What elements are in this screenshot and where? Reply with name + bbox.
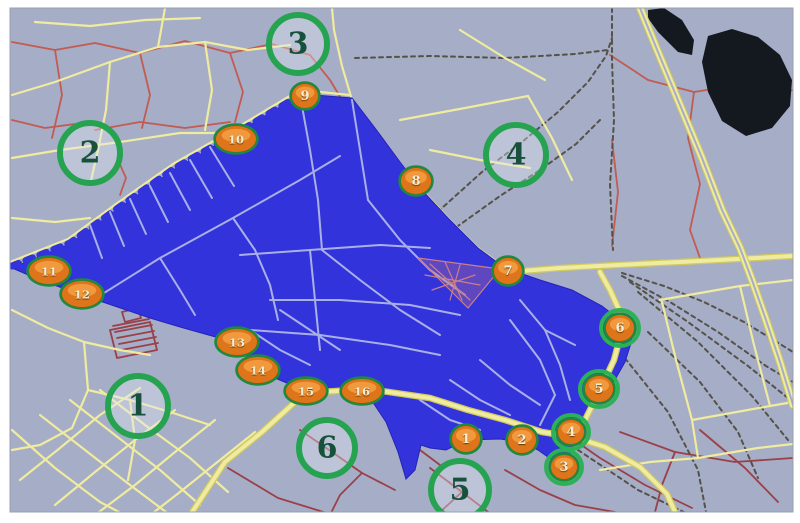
zone-number: 4 — [506, 138, 527, 173]
marker-7[interactable]: 7 — [493, 257, 524, 286]
marker-number: 6 — [615, 321, 624, 336]
marker-8[interactable]: 8 — [400, 167, 433, 196]
zone-number: 6 — [317, 431, 338, 466]
marker-number: 13 — [229, 336, 245, 350]
zone-number: 1 — [128, 389, 149, 424]
marker-number: 5 — [594, 382, 603, 397]
marker-number: 11 — [41, 265, 57, 279]
zone-circle-2: 2 — [60, 123, 120, 183]
frame-top — [0, 0, 800, 8]
marker-number: 8 — [411, 174, 420, 189]
marker-2[interactable]: 2 — [507, 426, 538, 455]
marker-number: 16 — [354, 385, 370, 399]
marker-16[interactable]: 16 — [341, 378, 384, 405]
marker-number: 9 — [300, 89, 309, 104]
zone-circle-3: 3 — [269, 15, 327, 73]
marker-number: 2 — [517, 433, 526, 448]
marker-number: 4 — [566, 425, 575, 440]
marker-number: 3 — [559, 460, 568, 475]
marker-5[interactable]: 5 — [580, 371, 618, 407]
map-screenshot: 12345612345678910111213141516 — [0, 0, 800, 523]
zone-number: 3 — [288, 27, 309, 62]
marker-12[interactable]: 12 — [61, 280, 104, 309]
marker-number: 10 — [228, 133, 244, 147]
zone-circle-1: 1 — [108, 376, 168, 436]
marker-number: 14 — [250, 364, 266, 378]
zone-circle-6: 6 — [299, 420, 355, 476]
frame-bottom — [0, 512, 800, 523]
frame-left — [0, 0, 10, 523]
zone-number: 2 — [80, 136, 101, 171]
marker-13[interactable]: 13 — [216, 328, 259, 357]
zone-circle-4: 4 — [486, 125, 546, 185]
marker-6[interactable]: 6 — [601, 310, 639, 346]
marker-number: 12 — [74, 288, 90, 302]
marker-14[interactable]: 14 — [237, 356, 280, 385]
marker-4[interactable]: 4 — [553, 415, 589, 449]
marker-number: 1 — [461, 432, 470, 447]
frame-right — [793, 0, 800, 523]
marker-1[interactable]: 1 — [451, 425, 482, 454]
zone-number: 5 — [450, 473, 471, 508]
marker-15[interactable]: 15 — [285, 378, 328, 405]
zone-circle-5: 5 — [431, 461, 489, 519]
marker-3[interactable]: 3 — [546, 450, 582, 484]
marker-number: 15 — [298, 385, 314, 399]
map-canvas[interactable]: 12345612345678910111213141516 — [0, 0, 800, 523]
marker-11[interactable]: 11 — [28, 257, 71, 286]
marker-number: 7 — [503, 264, 512, 279]
marker-9[interactable]: 9 — [291, 83, 320, 110]
marker-10[interactable]: 10 — [215, 125, 258, 154]
